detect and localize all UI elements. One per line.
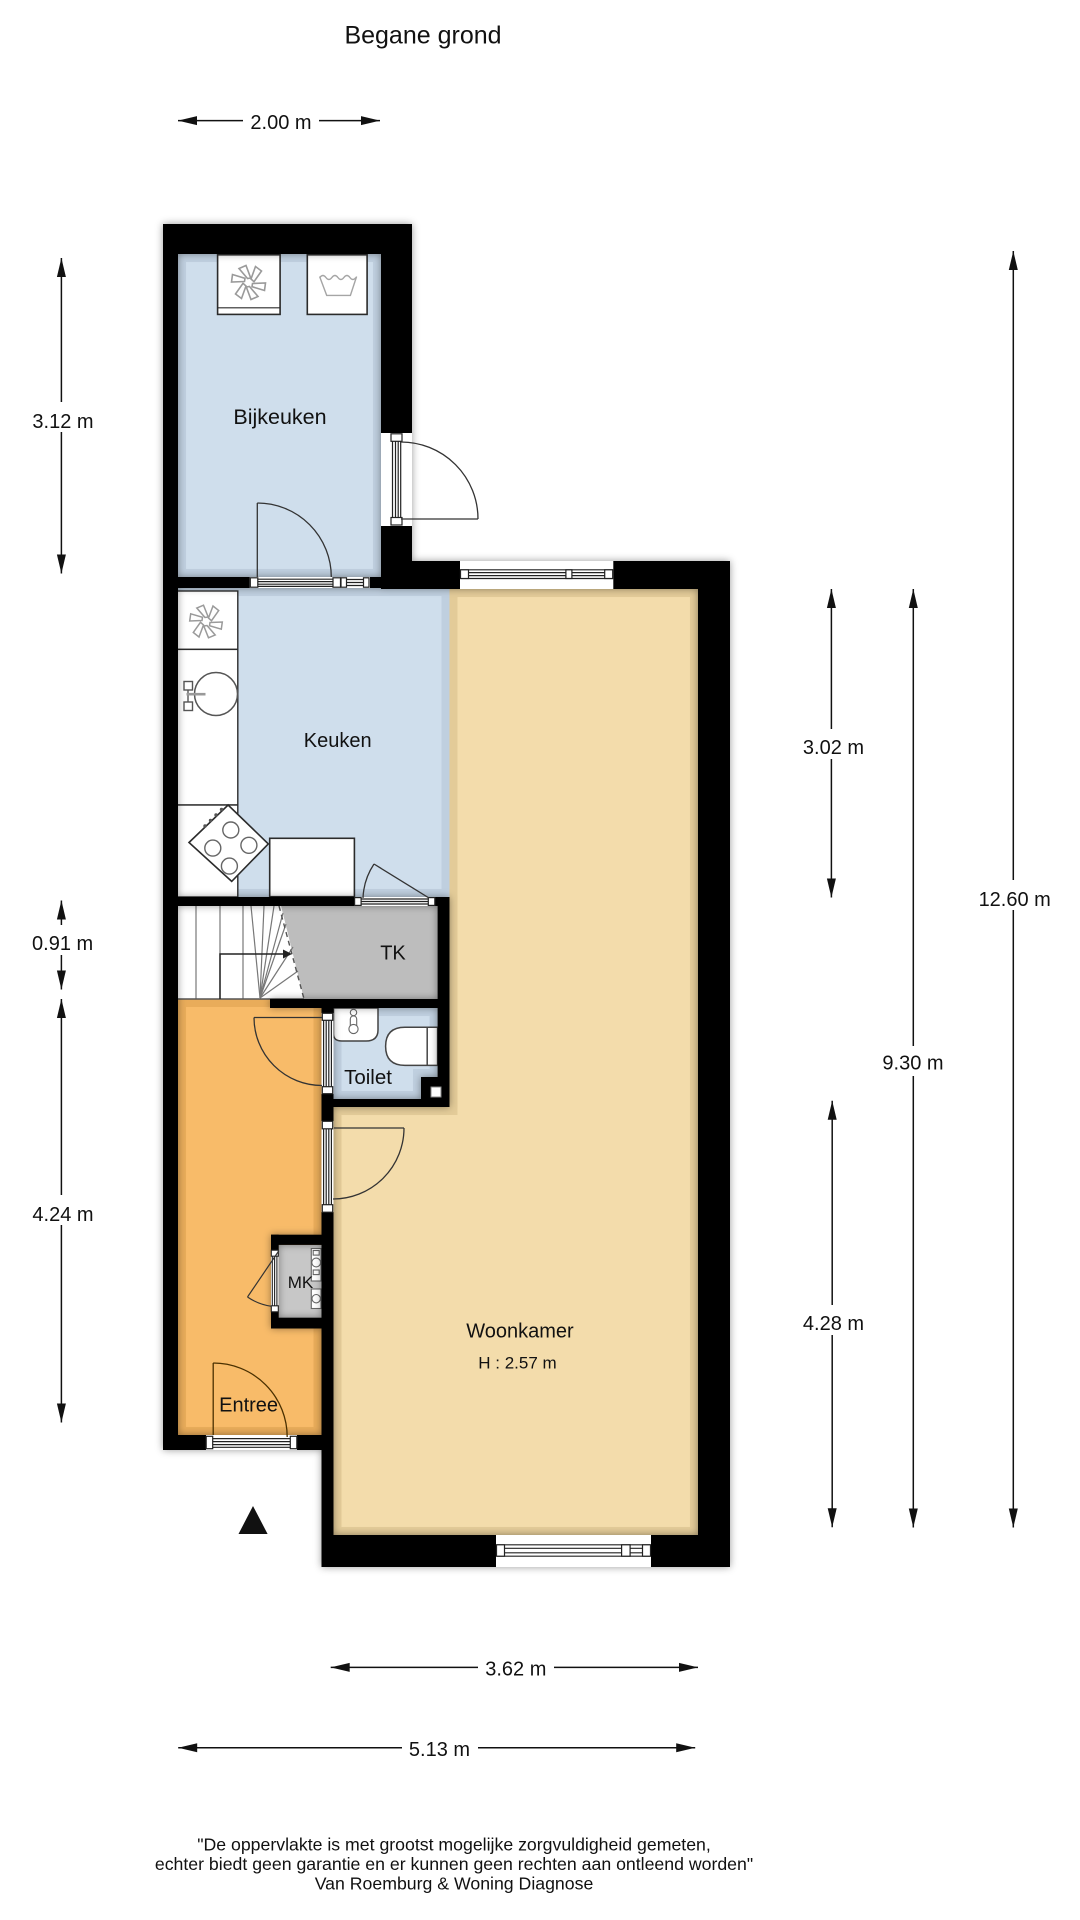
svg-text:Woonkamer: Woonkamer (466, 1321, 574, 1343)
svg-text:Van Roemburg & Woning Diagnose: Van Roemburg & Woning Diagnose (315, 1874, 594, 1894)
svg-text:Bijkeuken: Bijkeuken (233, 405, 326, 429)
svg-text:Begane grond: Begane grond (344, 22, 501, 50)
svg-text:H : 2.57 m: H : 2.57 m (478, 1354, 556, 1373)
svg-text:Entree: Entree (219, 1395, 278, 1417)
svg-text:12.60 m: 12.60 m (979, 889, 1051, 911)
svg-text:5.13 m: 5.13 m (409, 1739, 470, 1761)
svg-text:echter biedt geen garantie en: echter biedt geen garantie en er kunnen … (155, 1854, 753, 1874)
svg-text:Keuken: Keuken (304, 730, 372, 752)
svg-text:2.00 m: 2.00 m (250, 112, 311, 134)
svg-text:3.12 m: 3.12 m (32, 411, 93, 433)
svg-text:0.91 m: 0.91 m (32, 933, 93, 955)
svg-text:3.02 m: 3.02 m (803, 737, 864, 759)
svg-text:TK: TK (380, 943, 406, 965)
svg-text:MK: MK (288, 1273, 314, 1292)
svg-text:9.30 m: 9.30 m (882, 1053, 943, 1075)
svg-text:4.24 m: 4.24 m (32, 1204, 93, 1226)
svg-text:4.28 m: 4.28 m (803, 1313, 864, 1335)
svg-text:3.62 m: 3.62 m (485, 1658, 546, 1680)
svg-text:Toilet: Toilet (344, 1066, 392, 1089)
svg-text:"De oppervlakte is met grootst: "De oppervlakte is met grootst mogelijke… (197, 1834, 711, 1854)
